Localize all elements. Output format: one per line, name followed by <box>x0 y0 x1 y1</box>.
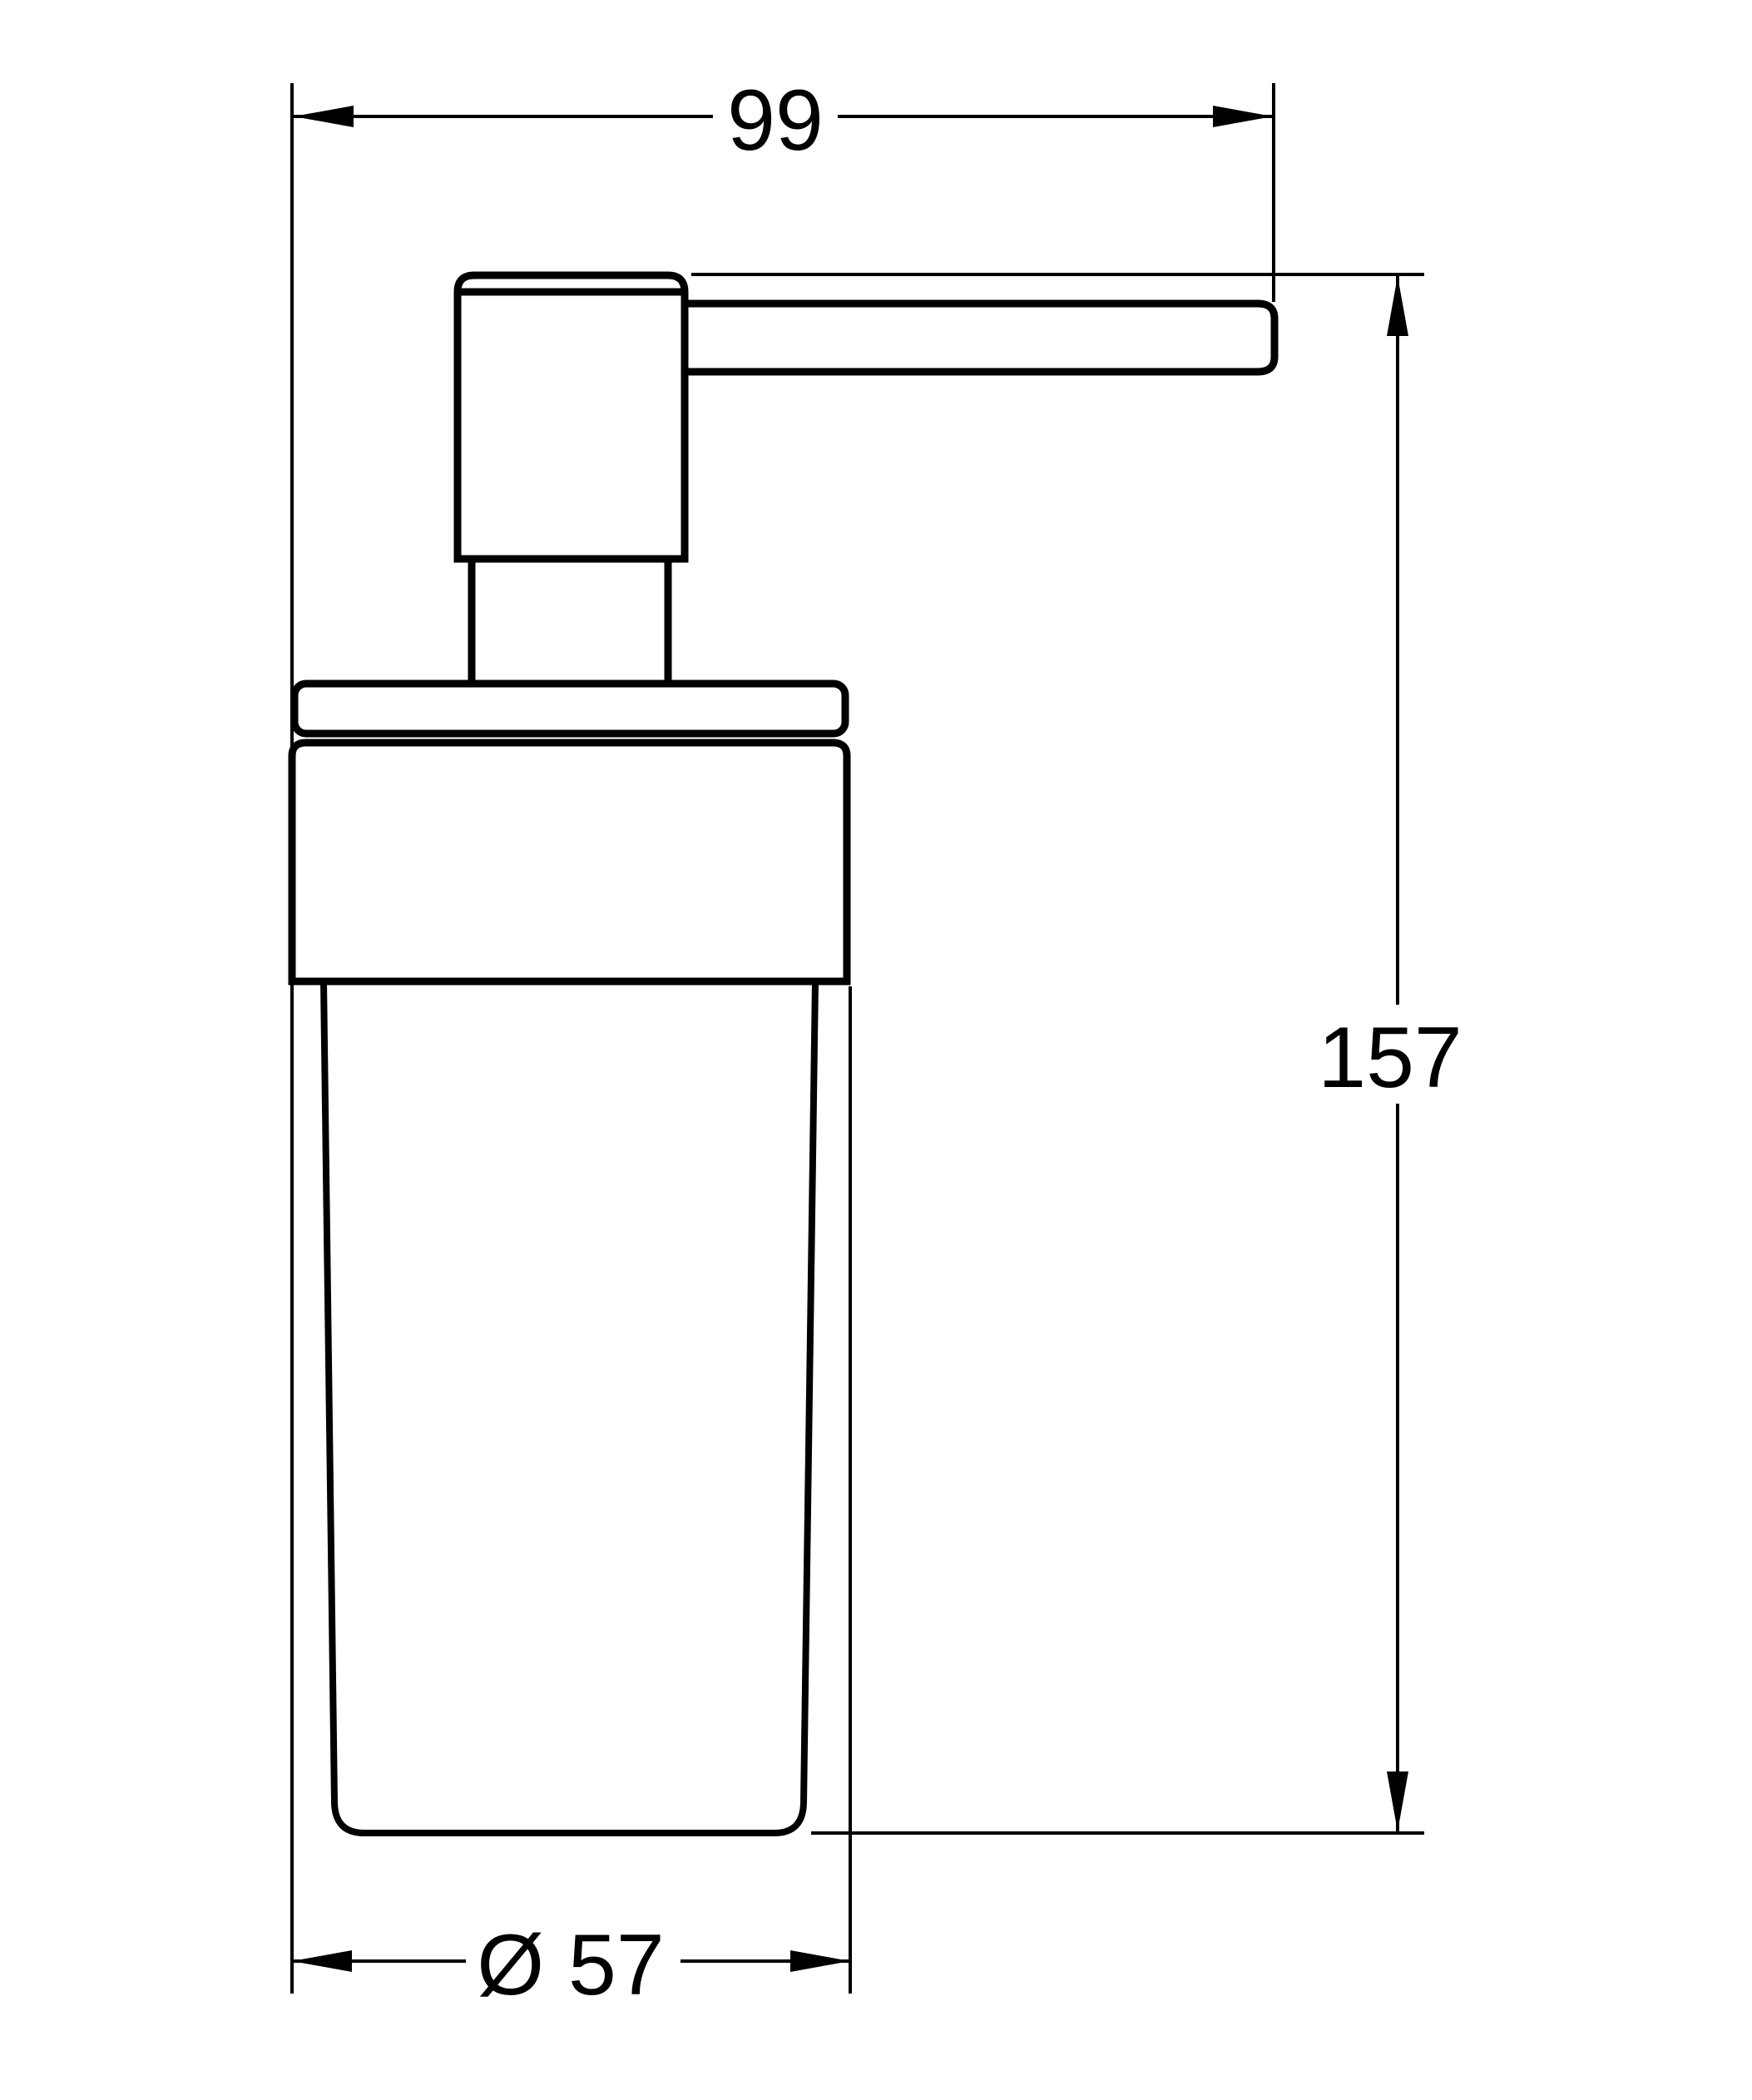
arrow-down-icon <box>1387 1771 1408 1831</box>
arrow-right-icon <box>1213 106 1273 127</box>
dimension-label-diameter: Ø 57 <box>477 1917 664 2014</box>
technical-drawing-canvas: 99 157 Ø 57 <box>0 0 1752 2100</box>
arrow-up-icon <box>1387 276 1408 336</box>
pump-neck <box>472 559 668 684</box>
mounting-plate <box>294 684 845 734</box>
pump-spout-lever <box>672 304 1274 372</box>
arrow-left-icon <box>294 106 354 127</box>
dispenser-outline <box>292 275 1274 1833</box>
dimension-label-width: 99 <box>727 72 824 169</box>
pump-head <box>458 275 685 559</box>
glass-container <box>324 981 815 1833</box>
arrow-left-diameter-icon <box>292 1950 352 1972</box>
dimension-label-height: 157 <box>1318 1010 1462 1106</box>
holder-shell <box>292 743 847 981</box>
arrow-right-diameter-icon <box>790 1950 850 1972</box>
soap-dispenser-drawing: 99 157 Ø 57 <box>0 0 1752 2100</box>
